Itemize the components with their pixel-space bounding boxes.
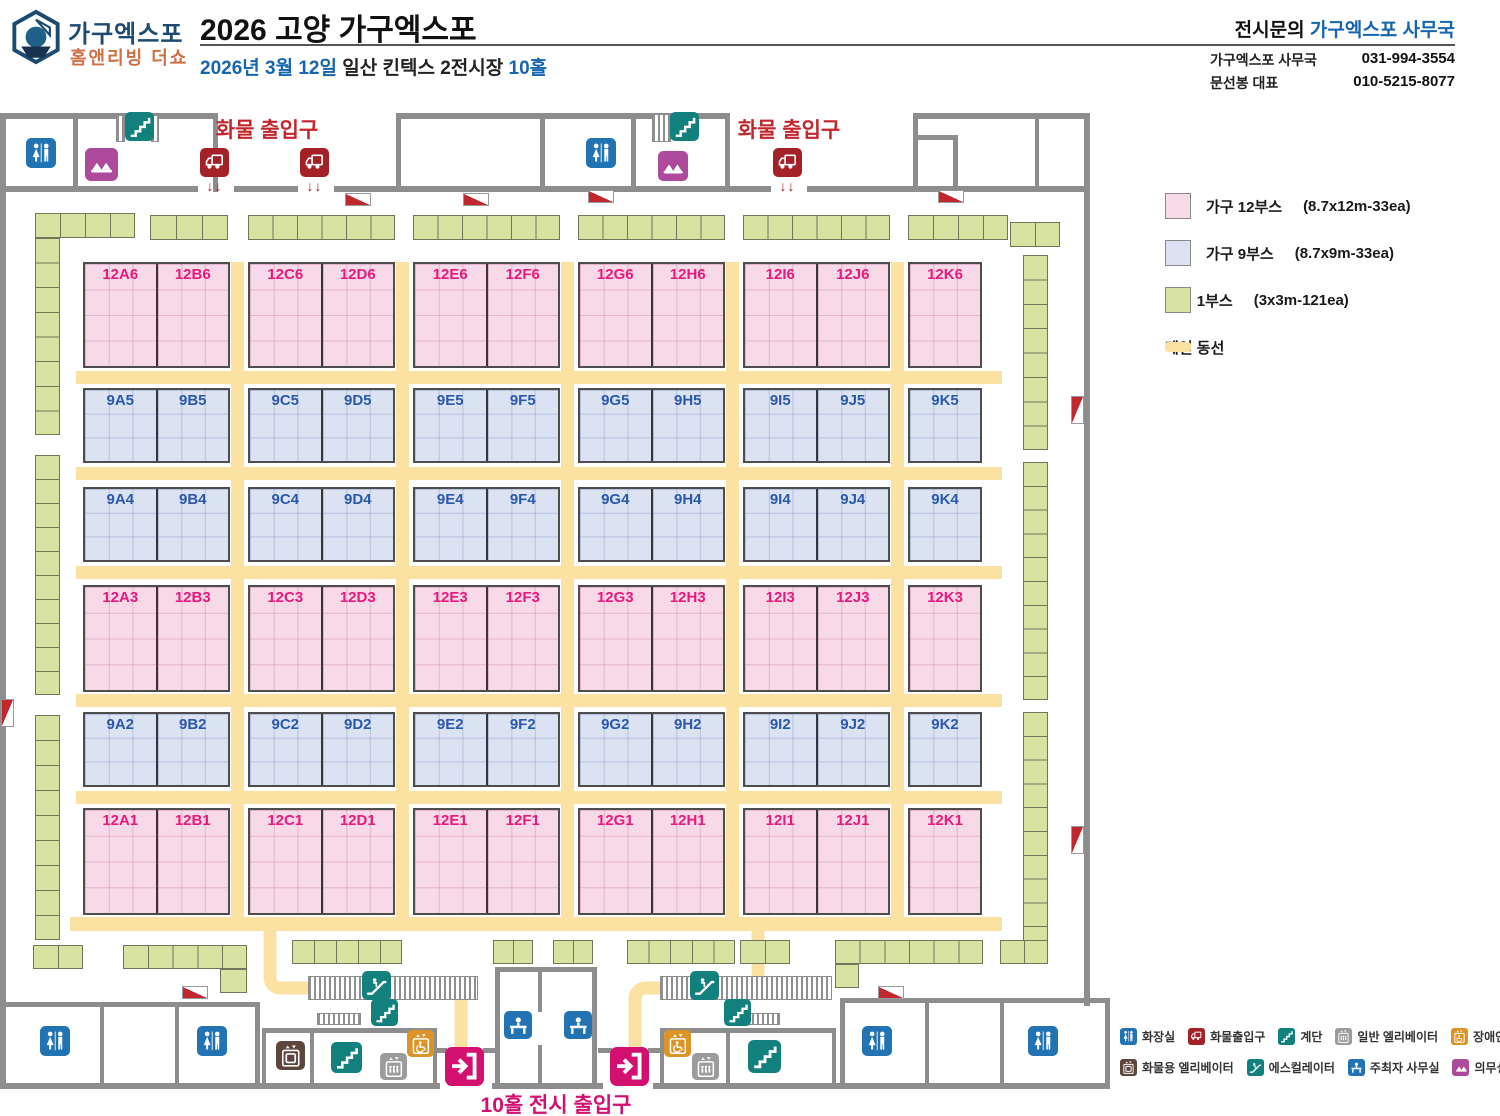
living-booth-strip	[627, 940, 735, 964]
restroom-icon	[862, 1026, 892, 1056]
living-booth-strip	[248, 215, 395, 240]
fire-hydrant-icon	[463, 193, 489, 206]
booth: 9E5	[415, 390, 486, 461]
booth: 9K2	[910, 714, 980, 785]
booth: 12A1	[85, 810, 156, 913]
organizer-office-icon	[564, 1011, 592, 1039]
elevator-icon	[1335, 1028, 1352, 1045]
booth: 9F4	[486, 489, 559, 560]
booth: 12H6	[651, 264, 724, 366]
booth: 9I5	[745, 390, 816, 461]
booth-label: 9H5	[653, 392, 724, 409]
booth-block: 12C112D1	[248, 808, 395, 915]
icon-legend-item: 에스컬레이터	[1247, 1059, 1335, 1076]
truck-icon	[300, 148, 329, 177]
booth-label: 12G1	[580, 812, 651, 829]
cargo-entrance-label-left: 화물 출입구	[182, 114, 352, 144]
booth: 12F1	[486, 810, 559, 913]
restroom-icon	[1120, 1028, 1137, 1045]
living-booth-strip	[493, 940, 533, 964]
legend-swatch-pink	[1165, 193, 1191, 219]
booth: 9B4	[156, 489, 229, 560]
booth-block: 12I612J6	[743, 262, 890, 368]
icon-legend-item: 의무실	[1452, 1059, 1500, 1076]
fire-hydrant-icon	[1071, 396, 1084, 424]
icon-legend-label: 장애인엘리베이터	[1473, 1028, 1500, 1045]
booth: 9H5	[651, 390, 724, 461]
escalator-icon	[690, 971, 719, 1000]
booth-block: 12I312J3	[743, 585, 890, 692]
booth-label: 9A4	[85, 491, 156, 508]
living-booth-strip	[123, 945, 247, 969]
booth-label: 9F5	[488, 392, 559, 409]
booth: 12B1	[156, 810, 229, 913]
booth-block: 12E312F3	[413, 585, 560, 692]
accessible-elevator-icon	[1451, 1028, 1468, 1045]
medical-icon	[658, 151, 688, 181]
booth: 9E2	[415, 714, 486, 785]
wall	[334, 186, 543, 192]
wall	[953, 135, 958, 192]
wall	[310, 1028, 314, 1085]
icon-legend-label: 에스컬레이터	[1269, 1059, 1335, 1076]
booth: 9J5	[816, 390, 889, 461]
booth-legend: 가구 12부스(8.7x12m-33ea)가구 9부스(8.7x9m-33ea)…	[1165, 193, 1411, 360]
booth: 9D2	[321, 714, 394, 785]
booth-block: 12E612F6	[413, 262, 560, 368]
booth-label: 12F6	[488, 266, 559, 283]
booth-label: 9J4	[818, 491, 889, 508]
booth: 12A3	[85, 587, 156, 690]
booth-label: 12D6	[323, 266, 394, 283]
wall	[0, 1002, 258, 1007]
living-booth-strip	[35, 213, 135, 238]
main-aisle-horizontal	[76, 791, 1002, 804]
booth: 9G2	[580, 714, 651, 785]
booth: 12G1	[580, 810, 651, 913]
icon-legend-item: 화장실	[1120, 1028, 1175, 1045]
booth: 12B3	[156, 587, 229, 690]
living-booth-strip	[1010, 222, 1060, 247]
booth-block: 12G612H6	[578, 262, 725, 368]
icon-legend-label: 화물출입구	[1210, 1028, 1265, 1045]
accessible-elevator-icon	[407, 1030, 434, 1057]
legend-item: 메인 동선	[1165, 334, 1411, 360]
icon-legend-item: 주최자 사무실	[1348, 1059, 1440, 1076]
stairs-icon	[748, 1040, 781, 1073]
wall	[0, 186, 198, 192]
booth-label: 12C3	[250, 589, 321, 606]
booth-block: 12C312D3	[248, 585, 395, 692]
event-hall: 10홀	[509, 58, 548, 79]
truck-icon	[773, 148, 802, 177]
icon-legend-label: 계단	[1300, 1028, 1322, 1045]
booth-block: 9C49D4	[248, 487, 395, 562]
event-date: 2026년 3월 12일	[200, 58, 337, 79]
living-booth-strip	[835, 964, 859, 988]
restroom-icon	[26, 138, 56, 168]
living-booth-strip	[220, 969, 247, 993]
wall	[631, 113, 636, 192]
booth-label: 9G4	[580, 491, 651, 508]
booth: 9D4	[321, 489, 394, 560]
booth: 12K6	[910, 264, 980, 366]
booth-label: 12A1	[85, 812, 156, 829]
booth-block: 9E59F5	[413, 388, 560, 463]
booth-label: 9D2	[323, 716, 394, 733]
booth-block: 9A49B4	[83, 487, 230, 562]
booth: 9B2	[156, 714, 229, 785]
booth-label: 9F2	[488, 716, 559, 733]
wall	[543, 113, 730, 119]
legend-item: 가구 12부스(8.7x12m-33ea)	[1165, 193, 1411, 219]
escalator-strip	[116, 115, 125, 142]
icon-legend-label: 화장실	[1142, 1028, 1175, 1045]
icon-legend-item: 화물출입구	[1188, 1028, 1265, 1045]
booth-label: 9K4	[910, 491, 980, 508]
main-aisle-horizontal	[76, 467, 1002, 480]
contact-title: 전시문의 가구엑스포 사무국	[1235, 15, 1455, 42]
booth: 12D1	[321, 810, 394, 913]
booth: 9I4	[745, 489, 816, 560]
booth-label: 9C5	[250, 392, 321, 409]
header-divider	[200, 44, 1455, 46]
living-booth-strip	[1023, 462, 1048, 700]
booth: 9I2	[745, 714, 816, 785]
living-booth-strip	[1000, 940, 1048, 964]
booth: 9B5	[156, 390, 229, 461]
booth-label: 9I2	[745, 716, 816, 733]
legend-spec: (8.7x12m-33ea)	[1303, 198, 1411, 215]
main-aisle-vertical	[231, 262, 244, 931]
hall-entrance-label: 10홀 전시 출입구	[426, 1089, 686, 1116]
booth-label: 9G5	[580, 392, 651, 409]
booth: 9J4	[816, 489, 889, 560]
wall	[234, 186, 298, 192]
main-aisle-vertical	[891, 262, 904, 931]
booth: 12B6	[156, 264, 229, 366]
wall	[175, 1002, 179, 1088]
expo-logo-icon	[10, 8, 62, 66]
wall	[653, 1083, 1110, 1089]
booth: 9K5	[910, 390, 980, 461]
wall	[1000, 998, 1004, 1088]
booth-label: 9B4	[158, 491, 229, 508]
booth: 12H3	[651, 587, 724, 690]
stairs-icon	[724, 999, 751, 1026]
icon-legend-item: 일반 엘리베이터	[1335, 1028, 1438, 1045]
booth: 9K4	[910, 489, 980, 560]
booth-block: 9G29H2	[578, 712, 725, 787]
booth-label: 9B2	[158, 716, 229, 733]
cargo-elevator-icon	[1120, 1059, 1137, 1076]
wall	[73, 113, 78, 192]
booth-label: 9J2	[818, 716, 889, 733]
booth-label: 9F4	[488, 491, 559, 508]
booth-block: 9K5	[908, 388, 982, 463]
booth-label: 12I1	[745, 812, 816, 829]
booth-label: 12E1	[415, 812, 486, 829]
living-booth-strip	[553, 940, 593, 964]
booth-label: 12K6	[910, 266, 980, 283]
legend-swatch-aisle	[1165, 342, 1191, 352]
icon-legend-item: 장애인엘리베이터	[1451, 1028, 1500, 1045]
accessible-elevator-icon	[664, 1030, 691, 1057]
booth-label: 12G6	[580, 266, 651, 283]
booth-label: 12I6	[745, 266, 816, 283]
booth: 12A6	[85, 264, 156, 366]
booth-block: 9E29F2	[413, 712, 560, 787]
main-aisle-bottom	[70, 917, 1002, 931]
booth: 9G4	[580, 489, 651, 560]
booth: 12J6	[816, 264, 889, 366]
cargo-direction-arrows: ↓↓	[300, 178, 329, 194]
booth-label: 12E6	[415, 266, 486, 283]
cargo-direction-arrows: ↓↓	[200, 178, 229, 194]
booth-block: 9A29B2	[83, 712, 230, 787]
living-booth-strip	[740, 940, 790, 964]
booth-block: 9I49J4	[743, 487, 890, 562]
living-booth-strip	[35, 715, 60, 940]
booth-block: 12K6	[908, 262, 982, 368]
living-booth-strip	[35, 238, 60, 435]
booth: 9C4	[250, 489, 321, 560]
booth: 12J1	[816, 810, 889, 913]
booth-label: 9G2	[580, 716, 651, 733]
wall	[543, 186, 728, 192]
booth: 9A4	[85, 489, 156, 560]
booth: 12E1	[415, 810, 486, 913]
booth-label: 12B6	[158, 266, 229, 283]
booth: 9C2	[250, 714, 321, 785]
booth-block: 12A612B6	[83, 262, 230, 368]
truck-icon	[1188, 1028, 1205, 1045]
booth-label: 12D3	[323, 589, 394, 606]
wall	[832, 1028, 836, 1085]
organizer-office-icon	[504, 1011, 532, 1039]
wall	[396, 113, 545, 119]
icon-legend-item: 계단	[1278, 1028, 1322, 1045]
living-booth-strip	[35, 455, 60, 695]
stairs-icon	[670, 112, 699, 141]
booth-label: 9E4	[415, 491, 486, 508]
truck-icon	[200, 148, 229, 177]
booth: 12K3	[910, 587, 980, 690]
booth: 12C6	[250, 264, 321, 366]
booth: 12I1	[745, 810, 816, 913]
stairs-icon	[1278, 1028, 1295, 1045]
booth-label: 9K2	[910, 716, 980, 733]
cargo-elevator-icon	[276, 1041, 305, 1070]
main-aisle-vertical	[396, 262, 409, 931]
restroom-icon	[40, 1026, 70, 1056]
booth-label: 9A5	[85, 392, 156, 409]
wall	[0, 1083, 440, 1089]
fire-hydrant-icon	[1, 699, 14, 727]
booth: 9F2	[486, 714, 559, 785]
main-aisle-vertical	[561, 262, 574, 931]
escalator-icon	[1247, 1059, 1264, 1076]
legend-label: 가구 12부스	[1206, 196, 1282, 217]
stairs-icon	[371, 999, 398, 1026]
wall	[925, 998, 929, 1088]
wall	[538, 1045, 542, 1085]
booth-label: 12F3	[488, 589, 559, 606]
booth-label: 12H1	[653, 812, 724, 829]
legend-item: 리빙 1부스(3x3m-121ea)	[1165, 287, 1411, 313]
wall	[726, 1028, 730, 1085]
wall	[913, 113, 918, 192]
booth-block: 12K3	[908, 585, 982, 692]
booth-label: 12B1	[158, 812, 229, 829]
booth-label: 9I4	[745, 491, 816, 508]
legend-swatch-blue	[1165, 240, 1191, 266]
booth-block: 9G49H4	[578, 487, 725, 562]
main-aisle-vertical	[726, 262, 739, 931]
contact-phone: 031-994-3554	[1345, 50, 1455, 70]
main-aisle-horizontal	[76, 371, 1002, 384]
stairs-icon	[125, 112, 154, 141]
booth-label: 9I5	[745, 392, 816, 409]
booth-label: 12C6	[250, 266, 321, 283]
booth-block: 9E49F4	[413, 487, 560, 562]
booth-label: 12A6	[85, 266, 156, 283]
icon-legend-label: 의무실	[1474, 1059, 1500, 1076]
booth: 9F5	[486, 390, 559, 461]
living-booth-strip	[33, 945, 83, 969]
booth: 12K1	[910, 810, 980, 913]
main-aisle-horizontal	[76, 566, 1002, 579]
living-booth-strip	[292, 940, 402, 964]
fire-hydrant-icon	[345, 193, 371, 206]
fire-hydrant-icon	[182, 986, 208, 999]
wall	[1035, 113, 1039, 192]
wall	[396, 113, 401, 192]
organizer-office-icon	[1348, 1059, 1365, 1076]
main-aisle-horizontal	[76, 694, 1002, 707]
elevator-icon	[380, 1053, 407, 1080]
booth-label: 9C2	[250, 716, 321, 733]
booth-label: 9C4	[250, 491, 321, 508]
booth-block: 12E112F1	[413, 808, 560, 915]
wall	[262, 1028, 266, 1085]
booth: 9E4	[415, 489, 486, 560]
booth: 9A2	[85, 714, 156, 785]
booth-label: 12F1	[488, 812, 559, 829]
entrance-icon	[610, 1047, 649, 1086]
booth: 12I6	[745, 264, 816, 366]
booth: 12C3	[250, 587, 321, 690]
booth-label: 9B5	[158, 392, 229, 409]
escalator-strip	[652, 114, 671, 142]
booth: 12H1	[651, 810, 724, 913]
event-venue: 일산 킨텍스 2전시장	[337, 58, 509, 79]
icon-legend-label: 일반 엘리베이터	[1357, 1028, 1438, 1045]
escalator-strip	[660, 976, 832, 1000]
booth-label: 9J5	[818, 392, 889, 409]
fire-hydrant-icon	[878, 986, 904, 999]
restroom-icon	[197, 1026, 227, 1056]
living-booth-strip	[908, 215, 1008, 240]
booth-label: 9E2	[415, 716, 486, 733]
legend-label: 가구 9부스	[1206, 243, 1274, 264]
booth-block: 9C59D5	[248, 388, 395, 463]
booth-block: 9I59J5	[743, 388, 890, 463]
booth-block: 12I112J1	[743, 808, 890, 915]
escalator-strip	[308, 976, 478, 1000]
fire-hydrant-icon	[588, 190, 614, 203]
living-booth-strip	[1023, 255, 1048, 450]
booth-label: 12J3	[818, 589, 889, 606]
booth: 12E6	[415, 264, 486, 366]
booth-block: 9I29J2	[743, 712, 890, 787]
booth-label: 12C1	[250, 812, 321, 829]
booth-label: 12D1	[323, 812, 394, 829]
contact-name: 문선봉 대표	[1210, 73, 1345, 93]
cargo-direction-arrows: ↓↓	[773, 178, 802, 194]
contact-name: 가구엑스포 사무국	[1210, 50, 1345, 70]
booth-label: 12I3	[745, 589, 816, 606]
living-booth-strip	[578, 215, 725, 240]
booth-block: 12G312H3	[578, 585, 725, 692]
icon-legend: 화장실화물출입구계단일반 엘리베이터장애인엘리베이터화물용 엘리베이터에스컬레이…	[1120, 1028, 1500, 1076]
living-booth-strip	[743, 215, 890, 240]
booth-label: 12K3	[910, 589, 980, 606]
booth: 12F6	[486, 264, 559, 366]
booth-block: 12C612D6	[248, 262, 395, 368]
restroom-icon	[586, 138, 616, 168]
contact-phone: 010-5215-8077	[1345, 73, 1455, 93]
booth: 9H2	[651, 714, 724, 785]
legend-swatch-green	[1165, 287, 1191, 313]
escalator-icon	[362, 971, 391, 1000]
wall	[0, 113, 6, 1088]
booth-label: 9A2	[85, 716, 156, 733]
legend-spec: (3x3m-121ea)	[1254, 292, 1349, 309]
booth-block: 9A59B5	[83, 388, 230, 463]
booth-block: 9G59H5	[578, 388, 725, 463]
booth-label: 9H4	[653, 491, 724, 508]
booth: 12D3	[321, 587, 394, 690]
booth-label: 9H2	[653, 716, 724, 733]
medical-icon	[85, 148, 118, 181]
legend-item: 가구 9부스(8.7x9m-33ea)	[1165, 240, 1411, 266]
booth: 12C1	[250, 810, 321, 913]
booth-label: 12J6	[818, 266, 889, 283]
booth: 12D6	[321, 264, 394, 366]
wall	[1084, 113, 1090, 1006]
wall	[728, 186, 771, 192]
wall	[592, 967, 597, 1085]
booth-label: 9E5	[415, 392, 486, 409]
booth-block: 9K2	[908, 712, 982, 787]
booth: 9J2	[816, 714, 889, 785]
stairs-icon	[331, 1042, 362, 1073]
wall	[540, 113, 545, 192]
contact-rows: 가구엑스포 사무국 031-994-3554 문선봉 대표 010-5215-8…	[1210, 50, 1455, 93]
wall	[255, 1002, 260, 1088]
fire-hydrant-icon	[938, 190, 964, 203]
wall	[538, 967, 542, 1012]
icon-legend-row: 화물용 엘리베이터에스컬레이터주최자 사무실의무실소화전	[1120, 1059, 1500, 1076]
booth-label: 12H3	[653, 589, 724, 606]
living-booth-strip	[1023, 712, 1048, 950]
legend-spec: (8.7x9m-33ea)	[1295, 245, 1394, 262]
booth-block: 12G112H1	[578, 808, 725, 915]
booth: 12J3	[816, 587, 889, 690]
booth-label: 9D4	[323, 491, 394, 508]
booth-label: 12A3	[85, 589, 156, 606]
